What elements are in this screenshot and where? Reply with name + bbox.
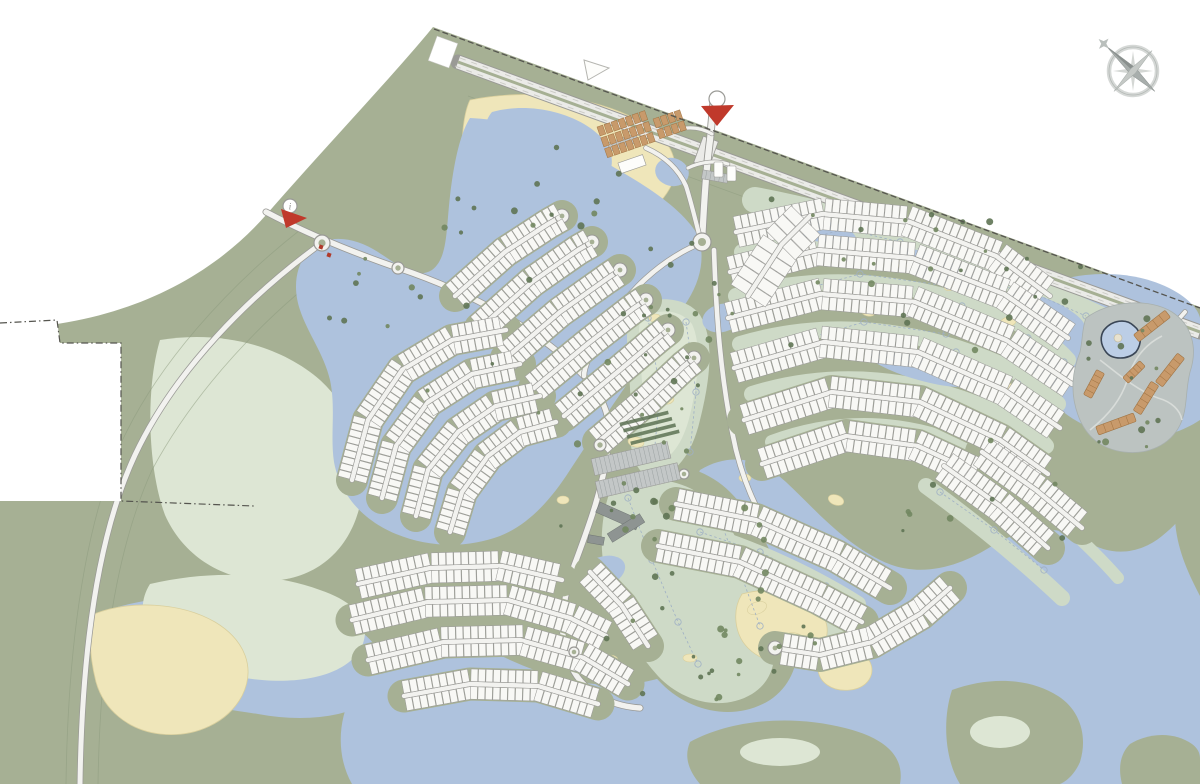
tree [554,145,559,150]
tree [906,509,911,514]
housing-plot [523,688,530,701]
housing-plot [456,644,463,657]
housing-plot [851,299,859,313]
master-plan-map: i [0,0,1200,784]
housing-plot [471,644,478,657]
housing-plot [890,223,898,237]
housing-plot [849,347,857,361]
tree [717,626,724,633]
tree [363,257,367,261]
tree [757,522,763,528]
tree [1118,343,1125,350]
housing-plot [853,440,862,454]
housing-plot [463,604,470,617]
housing-plot [897,384,905,398]
housing-plot [891,259,899,273]
tree [611,501,616,506]
tree [530,223,535,228]
tree [1102,438,1109,445]
housing-plot [871,350,879,364]
tree [689,241,694,246]
housing-plot [425,604,432,617]
housing-plot [476,551,483,564]
tree [858,227,863,232]
housing-plot [844,299,852,313]
tree [904,320,910,326]
entrance-arrow-icon [701,105,734,126]
roundabout [392,262,404,274]
housing-plot [493,625,500,638]
housing-plot [455,586,462,599]
housing-plot [448,604,455,617]
housing-plot [884,204,892,218]
housing-plot [448,627,455,640]
tree [813,641,817,645]
tree [868,280,875,287]
tree [668,262,674,268]
tree [716,694,723,701]
housing-plot [840,236,848,250]
tree [696,383,700,387]
tree [758,646,763,651]
compass-needle [1094,34,1160,97]
housing-plot [830,218,838,232]
housing-plot [454,552,461,565]
housing-plot [823,217,831,231]
housing-plot [469,552,476,565]
housing-plot [890,284,898,298]
tree [808,632,814,638]
housing-plot [875,443,884,457]
tree [1086,340,1092,346]
housing-plot [853,281,861,295]
tree [610,509,614,513]
housing-plot [821,297,829,311]
tree [717,293,720,296]
housing-plot [845,281,853,295]
housing-plot [858,398,866,412]
housing-plot [883,444,892,458]
gate-building [714,162,723,177]
tree [604,636,610,642]
housing-plot [447,586,454,599]
roundabout-island [395,265,400,270]
housing-plot [893,241,901,255]
housing-plot [831,254,839,268]
tree [959,269,963,273]
tree [578,391,583,396]
housing-plot [900,428,909,442]
tree [662,440,666,444]
housing-plot [828,394,836,408]
gate-building [727,166,736,181]
tree [933,227,938,232]
sand-bunker [683,654,697,662]
tree [357,272,361,276]
tree [1155,418,1160,423]
tree [758,587,765,594]
housing-plot [885,426,894,440]
housing-plot [470,687,477,700]
housing-plot [484,569,491,582]
housing-plot [860,441,869,455]
housing-plot [836,395,844,409]
tree [668,313,672,317]
tree [685,355,689,359]
housing-plot [881,332,889,346]
cul-de-sac-island [590,240,595,245]
tree [616,171,622,177]
tree [972,347,978,353]
housing-plot [501,643,508,656]
housing-plot [449,644,456,657]
housing-plot [432,587,439,600]
housing-plot [894,352,902,366]
tree [1086,357,1090,361]
housing-plot [486,669,493,682]
housing-plot [471,669,478,682]
tree [772,669,777,674]
housing-plot [873,399,881,413]
housing-plot [478,626,485,639]
housing-plot [446,552,453,565]
housing-plot [479,643,486,656]
housing-plot [463,626,470,639]
housing-plot [880,400,888,414]
tree [684,448,689,453]
housing-plot [509,643,516,656]
tree [901,529,904,532]
tree [577,222,584,229]
housing-plot [508,625,515,638]
housing-plot [912,386,920,400]
housing-plot [908,242,916,256]
housing-plot [851,329,859,343]
housing-plot [884,258,892,272]
housing-plot [881,302,889,316]
housing-plot [903,403,911,417]
tree [737,673,741,677]
tree [459,230,463,234]
housing-plot [888,401,896,415]
tree [442,225,448,231]
tree [425,388,429,392]
tree [660,606,664,610]
housing-plot [470,603,477,616]
housing-plot [516,625,523,638]
tree [692,655,696,659]
housing-plot [845,219,853,233]
housing-plot [858,330,866,344]
housing-plot [508,670,515,683]
tree [621,311,626,316]
housing-plot [491,551,498,564]
housing-plot [447,570,454,583]
housing-plot [838,218,846,232]
housing-plot [895,402,903,416]
housing-plot [841,347,849,361]
housing-plot [485,603,492,616]
tree [706,336,713,343]
secondary-gate-icon [584,60,609,80]
housing-plot [885,240,893,254]
housing-plot [864,349,872,363]
housing-plot [863,423,872,437]
north-entrance-marker [701,91,734,126]
housing-plot [907,429,916,443]
tree [1145,445,1148,448]
housing-plot [846,439,855,453]
tree [929,212,934,217]
tree [491,362,495,366]
housing-plot [889,302,897,316]
housing-plot [441,644,448,657]
housing-plot [440,586,447,599]
housing-plot [862,202,870,216]
excluded-parcel [0,320,121,501]
tree [640,413,644,417]
housing-plot [508,688,515,701]
tree [633,487,639,493]
housing-plot [905,385,913,399]
housing-plot [900,241,908,255]
tree [741,504,748,511]
tree [669,505,676,512]
housing-plot [485,687,492,700]
tree [680,407,683,410]
housing-plot [440,604,447,617]
roundabout-island [698,238,706,246]
entrance-marker-circle [709,91,725,107]
tree [591,211,597,217]
tree [761,537,767,543]
compass-rose [1094,34,1160,97]
tree [698,675,703,680]
tree [622,481,627,486]
housing-plot [523,670,530,683]
tree [640,691,645,696]
housing-plot [886,351,894,365]
tree [472,206,477,211]
tree [537,411,541,415]
housing-plot [492,585,499,598]
housing-plot [829,297,837,311]
island-meadow [970,716,1030,748]
housing-plot [868,221,876,235]
housing-plot [878,425,887,439]
housing-plot [478,669,485,682]
housing-plot [883,222,891,236]
housing-plot [855,201,863,215]
tree [1062,298,1069,305]
housing-plot [493,687,500,700]
tree [777,644,782,649]
roundabout-island [682,472,687,477]
housing-plot [501,670,508,683]
tree [1155,367,1159,371]
housing-plot [870,424,879,438]
housing-plot [851,397,859,411]
housing-plot [901,353,909,367]
tree [386,324,390,328]
housing-plot [493,670,500,683]
housing-plot [454,570,461,583]
cul-de-sac-island [666,328,671,333]
housing-plot [838,377,846,391]
housing-plot [838,280,846,294]
housing-plot [863,238,871,252]
housing-plot [859,300,867,314]
cul-de-sac-island [644,298,649,303]
housing-plot [856,348,864,362]
housing-plot [432,570,439,583]
housing-plot [877,203,885,217]
master-plan-page: i [0,0,1200,784]
roundabout-island [572,650,577,655]
tree [1143,315,1150,322]
housing-plot [874,301,882,315]
roundabout [693,233,711,251]
tree [986,218,993,225]
tree [712,281,717,286]
housing-plot [899,260,907,274]
housing-plot [883,284,891,298]
tree [1145,420,1149,424]
housing-plot [860,282,868,296]
housing-plot [865,399,873,413]
housing-plot [840,200,848,214]
housing-plot [469,569,476,582]
housing-plot [876,258,884,272]
housing-plot [866,331,874,345]
tree [648,247,653,252]
housing-plot [478,687,485,700]
housing-plot [892,205,900,219]
housing-plot [910,336,918,350]
housing-plot [898,446,907,460]
housing-plot [848,421,857,435]
tree [455,196,460,201]
housing-plot [500,585,507,598]
housing-plot [898,285,906,299]
housing-plot [836,328,844,342]
housing-plot [868,381,876,395]
tree [634,392,638,396]
housing-plot [425,587,432,600]
tree [649,305,653,309]
housing-plot [834,346,842,360]
housing-plot [833,236,841,250]
tree [418,294,423,299]
housing-plot [477,569,484,582]
tree [947,515,954,522]
tree [652,537,657,542]
pool-islet [1114,334,1122,342]
housing-plot [461,552,468,565]
housing-plot [455,604,462,617]
cul-de-sac-island [560,214,565,219]
housing-plot [843,328,851,342]
roundabout-island [597,442,602,447]
housing-plot [855,422,864,436]
tree [630,514,635,519]
cul-de-sac-island [618,268,623,273]
housing-plot [903,335,911,349]
island-meadow [740,738,820,766]
tree [769,196,775,202]
tree [842,257,846,261]
tree [693,311,699,317]
tree [1033,295,1037,299]
tree [644,353,647,356]
housing-plot [516,670,523,683]
housing-plot [828,327,836,341]
housing-plot [847,201,855,215]
housing-plot [855,238,863,252]
tree [652,573,659,580]
housing-plot [825,235,833,249]
housing-plot [470,586,477,599]
tree [1006,314,1013,321]
housing-plot [500,688,507,701]
tree [642,314,646,318]
tree [511,207,518,214]
housing-plot [854,256,862,270]
housing-plot [882,382,890,396]
tree [670,571,675,576]
tree [802,625,806,629]
housing-plot [830,376,838,390]
tree [341,318,347,324]
tree [730,312,734,316]
tree [928,266,933,271]
tree [1097,440,1100,443]
tree [1141,329,1145,333]
tree [409,284,415,290]
housing-plot [478,603,485,616]
housing-plot [471,626,478,639]
housing-plot [893,427,902,441]
tree [724,628,728,632]
housing-plot [875,283,883,297]
housing-plot [905,286,913,300]
sand-bunker [557,496,569,504]
housing-plot [824,253,832,267]
housing-plot [870,239,878,253]
tree [990,497,995,502]
housing-plot [878,240,886,254]
tree [1025,257,1029,261]
tree [327,316,332,321]
tree [559,524,562,527]
housing-plot [486,643,493,656]
housing-plot [853,379,861,393]
housing-plot [830,279,838,293]
housing-plot [895,334,903,348]
cul-de-sac-island [692,356,697,361]
housing-plot [439,552,446,565]
tree [930,482,936,488]
housing-plot [890,445,899,459]
tree [762,569,769,576]
housing-plot [860,380,868,394]
tree [788,342,793,347]
housing-plot [845,378,853,392]
tree [736,658,742,664]
housing-plot [494,643,501,656]
tree [663,513,670,520]
tree [1059,535,1065,541]
